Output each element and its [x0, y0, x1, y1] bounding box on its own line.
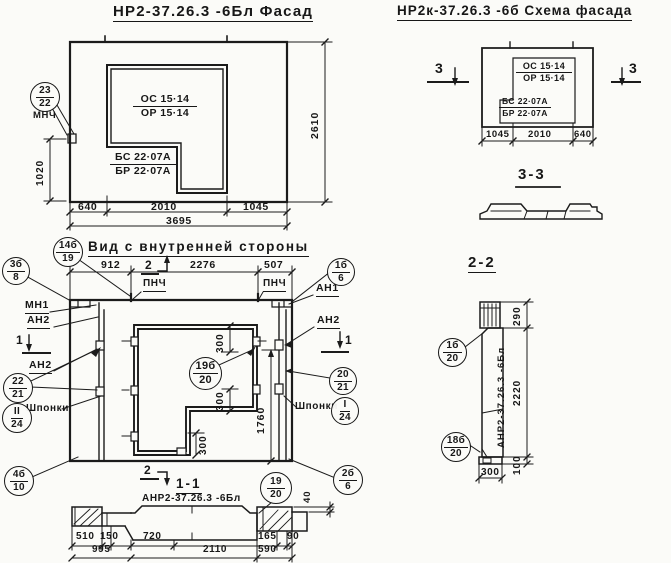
facade-block-mark-top: БС 22·07А [110, 152, 176, 165]
facade-dim-2610: 2610 [310, 103, 321, 139]
inner-marker-1-right: 1 [345, 334, 352, 346]
callout-18b-20-bottom: 20 [450, 449, 462, 459]
inner-dim-1760: 1760 [256, 394, 267, 434]
inner-mn1-label: МН1 [25, 300, 49, 314]
inner-view-outline [70, 300, 292, 461]
callout-2b-6-bottom: 6 [345, 482, 351, 492]
s22-dim-300: 300 [481, 468, 500, 478]
inner-dim-507: 507 [264, 260, 283, 271]
s22-dim-290: 290 [513, 304, 523, 326]
callout-II-24-top: II [11, 407, 23, 419]
inner-shponki-left: Шпонки [26, 404, 69, 414]
callout-4b-10-bottom: 10 [13, 483, 25, 493]
s11-dim-510: 510 [76, 532, 95, 542]
scheme-marker-3-right: 3 [629, 61, 637, 75]
inner-marker-2-top: 2 [145, 259, 152, 271]
callout-4b-10-top: 4б [10, 470, 28, 482]
facade-dim-1020: 1020 [36, 152, 46, 186]
callout-23-22: 23 22 [30, 82, 60, 112]
inner-view-leaders [26, 259, 333, 477]
callout-23-22-bottom: 22 [39, 99, 51, 109]
inner-dim-2276: 2276 [190, 260, 216, 271]
callout-22-21: 22 21 [3, 373, 33, 403]
callout-3b-8-top: 3б [7, 260, 25, 272]
inner-view-title: Вид с внутренней стороны [88, 240, 309, 257]
callout-19b-20-top: 19б [193, 361, 219, 374]
inner-pnch-right: ПНЧ [263, 279, 286, 292]
scheme-block-mark-top: БС 22·07А [499, 97, 551, 108]
callout-20-21-bottom: 21 [337, 383, 349, 393]
facade-title: НР2-37.26.3 -6Бл Фасад [113, 4, 313, 22]
callout-14b-19-bottom: 19 [62, 254, 74, 264]
facade-dim-1045: 1045 [243, 202, 269, 213]
callout-4b-10: 4б 10 [4, 466, 34, 496]
inner-marker-1-left: 1 [16, 334, 23, 346]
facade-block-mark-bottom: БР 22·07А [115, 165, 171, 177]
callout-14b-19: 14б 19 [53, 237, 83, 267]
callout-19b-20-bottom: 20 [199, 375, 212, 386]
inner-view-dimensions [67, 266, 295, 464]
s11-dim-150: 150 [100, 532, 119, 542]
callout-23-22-top: 23 [36, 86, 54, 98]
facade-block-mark: БС 22·07А БР 22·07А [110, 152, 176, 177]
inner-an2-upper-left: АН2 [27, 315, 50, 329]
scheme-window-mark: ОС 15·14 ОР 15·14 [516, 62, 572, 84]
s22-dim-2220: 2220 [513, 370, 523, 406]
callout-19-20-bottom: 20 [270, 490, 282, 500]
s11-dim-995: 995 [92, 545, 111, 555]
callout-19b-20: 19б 20 [189, 357, 222, 390]
callout-18b-20-top: 18б [444, 436, 468, 448]
callout-2b-6-top: 2б [339, 469, 357, 481]
scheme-dim-640: 640 [574, 130, 592, 140]
s11-dim-165: 165 [258, 532, 277, 542]
section-1-1-label: АНР2-37.26.3 -6Бл [142, 494, 241, 504]
facade-window-mark-top: ОС 15·14 [133, 94, 197, 107]
callout-II-24-bottom: 24 [11, 420, 23, 430]
scheme-block-mark-bottom: БР 22·07А [502, 108, 548, 118]
s11-dim-2110: 2110 [203, 545, 227, 555]
callout-I-24: I 24 [331, 397, 359, 425]
callout-I-24-bottom: 24 [339, 413, 351, 423]
scheme-dim-2010: 2010 [528, 130, 552, 140]
inner-an2-lower-left: АН2 [29, 360, 52, 374]
scheme-dim-1045: 1045 [486, 130, 510, 140]
section-2-2-label: АНР2-37.26.3 -6Бл [497, 336, 507, 448]
callout-22-21-top: 22 [9, 377, 27, 389]
section-2-2-title: 2-2 [468, 255, 496, 273]
callout-1b-20-top: 1б [443, 341, 461, 353]
facade-mnch-label: МНЧ [33, 111, 56, 121]
facade-dim-640: 640 [78, 202, 97, 213]
callout-14b-19-top: 14б [56, 241, 80, 253]
inner-marker-2-bottom: 2 [144, 464, 151, 476]
s11-dim-90: 90 [287, 532, 299, 542]
facade-dim-2010: 2010 [151, 202, 177, 213]
callout-II-24: II 24 [2, 403, 32, 433]
callout-2b-6: 2б 6 [333, 465, 363, 495]
callout-20-21: 20 21 [329, 367, 357, 395]
callout-I-24-top: I [340, 400, 349, 412]
s11-dim-590: 590 [258, 545, 277, 555]
facade-dim-3695: 3695 [166, 216, 192, 227]
scheme-section-3-3-title: 3-3 [518, 167, 546, 182]
scheme-window-mark-top: ОС 15·14 [516, 62, 572, 73]
s11-dim-720: 720 [143, 532, 162, 542]
callout-3b-8: 3б 8 [2, 257, 30, 285]
callout-1b-6: 1б 6 [327, 258, 355, 286]
callout-3b-8-bottom: 8 [13, 273, 19, 283]
callout-1b-20-bottom: 20 [447, 354, 459, 364]
callout-20-21-top: 20 [334, 370, 352, 382]
inner-an2-right: АН2 [317, 315, 340, 329]
drawing-sheet: НР2-37.26.3 -6Бл Фасад ОС 15·14 ОР 15·14… [0, 0, 671, 563]
scheme-window-mark-bottom: ОР 15·14 [523, 73, 565, 83]
s22-dim-100: 100 [513, 455, 523, 475]
facade-window-mark-bottom: ОР 15·14 [141, 107, 189, 119]
callout-18b-20: 18б 20 [441, 432, 471, 462]
section-1-1-title: 1-1 [176, 477, 202, 494]
scheme-block-mark: БС 22·07А БР 22·07А [499, 97, 551, 118]
scheme-profile-3-3 [480, 204, 602, 219]
inner-dim-300-mid: 300 [216, 389, 226, 411]
inner-dim-300-bottom: 300 [199, 433, 209, 455]
inner-pnch-left: ПНЧ [143, 279, 166, 292]
callout-1b-20: 1б 20 [438, 338, 467, 367]
callout-22-21-bottom: 21 [12, 390, 24, 400]
scheme-title: НР2к-37.26.3 -6б Схема фасада [397, 4, 632, 21]
callout-19-20-top: 19 [267, 477, 285, 489]
callout-1b-6-bottom: 6 [338, 274, 344, 284]
inner-dim-912: 912 [101, 260, 120, 271]
scheme-marker-3-left: 3 [435, 61, 443, 75]
inner-dim-300-top: 300 [216, 329, 226, 353]
callout-1b-6-top: 1б [332, 261, 350, 273]
facade-window-mark: ОС 15·14 ОР 15·14 [133, 94, 197, 119]
s11-dim-40: 40 [303, 487, 313, 503]
callout-19-20: 19 20 [260, 472, 292, 504]
